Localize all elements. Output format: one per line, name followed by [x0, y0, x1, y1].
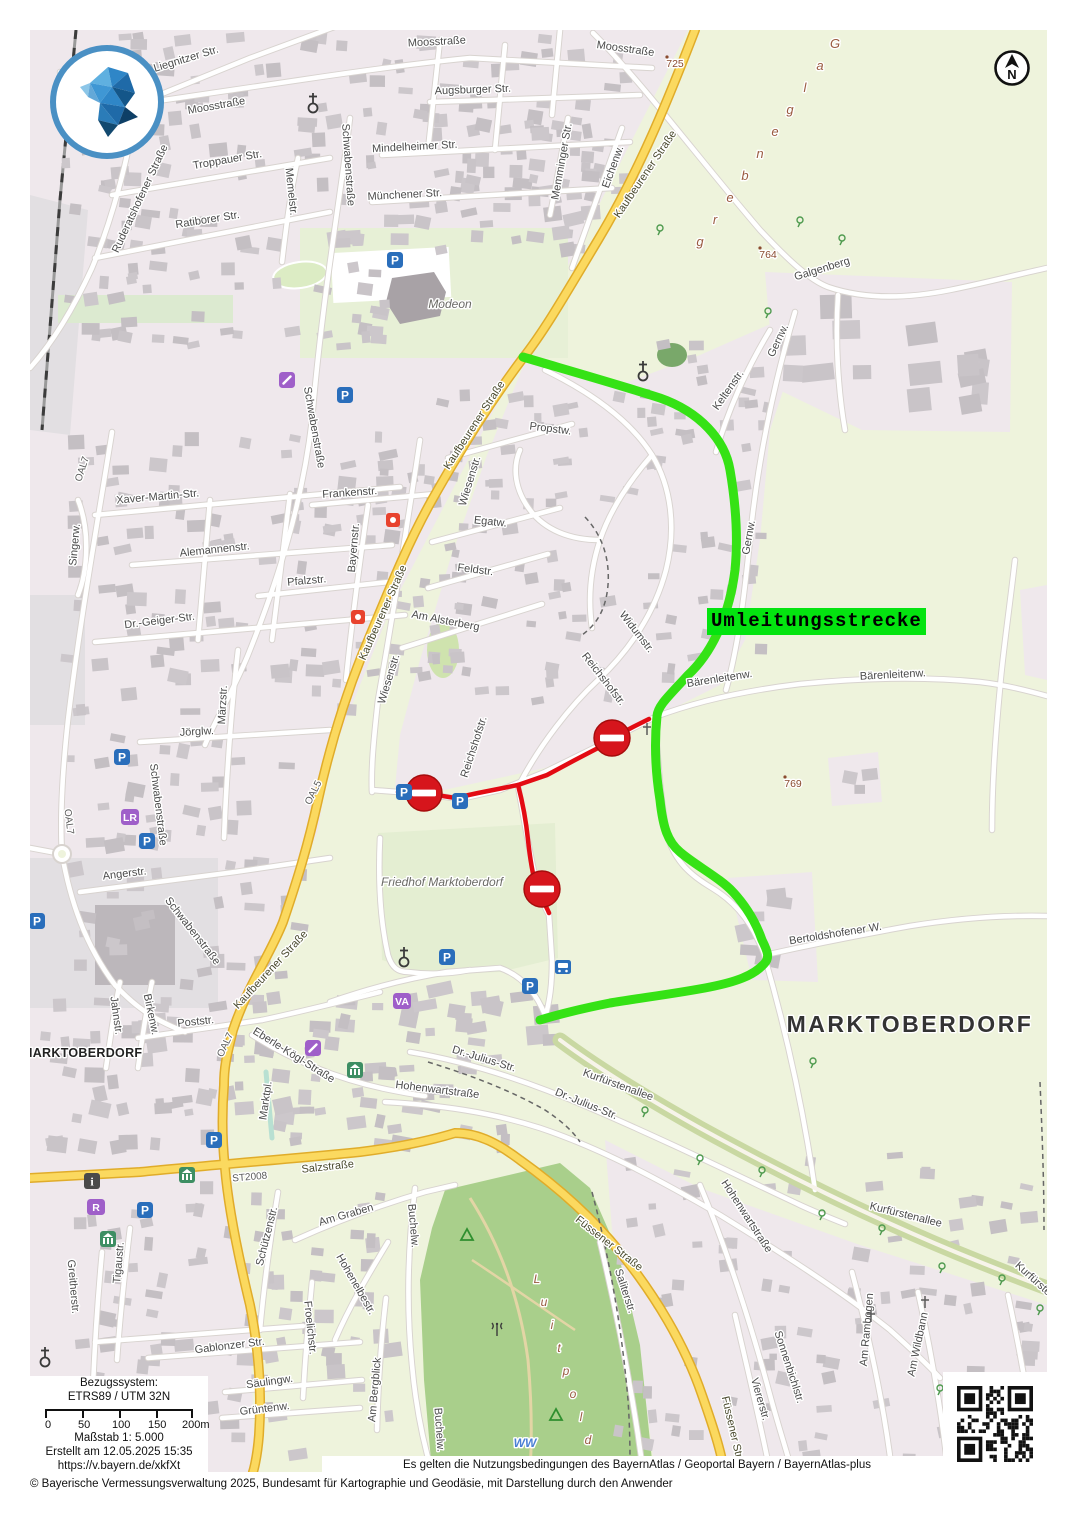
- svg-text:N: N: [1007, 67, 1016, 82]
- svg-text:P: P: [400, 786, 408, 800]
- elevation-label: 769: [784, 778, 802, 790]
- bus-icon: [555, 960, 571, 974]
- street-label: Märzstr.: [216, 685, 230, 725]
- info-icon: i: [84, 1173, 100, 1189]
- svg-text:P: P: [341, 389, 349, 403]
- svg-text:P: P: [526, 980, 534, 994]
- svg-text:P: P: [118, 751, 126, 765]
- north-arrow: N: [992, 48, 1032, 88]
- parking-icon: P: [439, 949, 455, 965]
- town-label-large: MARKTOBERDORF: [787, 1011, 1034, 1037]
- copyright-text: © Bayerische Vermessungsverwaltung 2025,…: [30, 1478, 930, 1490]
- hydrant-icon: [351, 610, 365, 624]
- poi-letter-icon: VA: [393, 993, 411, 1009]
- area-label-letter: G: [830, 36, 840, 51]
- terms-text: Es gelten die Nutzungsbedingungen des Ba…: [322, 1456, 952, 1474]
- museum-icon: [347, 1062, 363, 1078]
- detour-route-label: Umleitungsstrecke: [707, 608, 926, 635]
- parking-icon: P: [396, 784, 412, 800]
- street-label: Jörglw.: [179, 725, 214, 739]
- museum-icon: [179, 1167, 195, 1183]
- parking-icon: P: [206, 1132, 222, 1148]
- scale-bar: [45, 1409, 193, 1419]
- svg-text:P: P: [210, 1134, 218, 1148]
- area-label-letter: b: [741, 168, 748, 183]
- svg-text:P: P: [391, 254, 399, 268]
- svg-text:VA: VA: [395, 996, 409, 1008]
- area-label-letter: e: [726, 190, 733, 205]
- created-text: Erstellt am 12.05.2025 15:35: [30, 1446, 208, 1459]
- area-label-letter: d: [585, 1433, 592, 1447]
- roundabout: [53, 845, 71, 863]
- svg-text:R: R: [92, 1202, 100, 1214]
- area-label-letter: r: [713, 212, 718, 227]
- hydrant-icon: [386, 513, 400, 527]
- area-label-letter: g: [786, 102, 794, 117]
- museum-icon: [100, 1231, 116, 1247]
- svg-text:P: P: [141, 1204, 149, 1218]
- town-label-small: MARKTOBERDORF: [30, 1046, 142, 1060]
- parking-icon: P: [139, 833, 155, 849]
- qr-box: [943, 1372, 1047, 1472]
- area-label-letter: g: [696, 234, 704, 249]
- area-label-letter: o: [570, 1387, 577, 1401]
- poi-letter-icon: LR: [121, 809, 139, 825]
- elevation-label: 725: [666, 58, 684, 70]
- area-label-letter: n: [756, 146, 763, 161]
- reference-system-title: Bezugssystem:: [30, 1377, 208, 1390]
- scale-bar-labels: 0 50 100 150 200m: [34, 1419, 204, 1431]
- scale-box: Bezugssystem: ETRS89 / UTM 32N 0 50 100 …: [30, 1376, 208, 1472]
- parking-icon: P: [137, 1202, 153, 1218]
- parking-icon: P: [452, 793, 468, 809]
- poi-label: Modeon: [428, 297, 472, 311]
- area-label-letter: a: [816, 58, 823, 73]
- poi-label: WW: [514, 1436, 538, 1450]
- svg-text:P: P: [33, 915, 41, 929]
- area-label-letter: e: [771, 124, 778, 139]
- scale-text: Maßstab 1: 5.000: [30, 1432, 208, 1445]
- parking-icon: P: [522, 978, 538, 994]
- parking-icon: P: [387, 252, 403, 268]
- map-svg: Liegnitzer Str.MoosstraßeMoosstraßeMooss…: [30, 30, 1047, 1472]
- reference-system-value: ETRS89 / UTM 32N: [30, 1391, 208, 1404]
- area-label-letter: i: [551, 1318, 554, 1332]
- svg-text:P: P: [143, 835, 151, 849]
- svg-text:P: P: [443, 951, 451, 965]
- no-entry-icon: [524, 871, 560, 907]
- area-label-letter: l: [580, 1410, 583, 1424]
- pencil-icon: [279, 372, 295, 388]
- print-page: Liegnitzer Str.MoosstraßeMoosstraßeMooss…: [0, 0, 1080, 1527]
- pencil-icon: [305, 1040, 321, 1056]
- map-canvas[interactable]: Liegnitzer Str.MoosstraßeMoosstraßeMooss…: [30, 30, 1047, 1472]
- poi-letter-icon: R: [87, 1199, 105, 1215]
- share-url[interactable]: https://v.bayern.de/xkfXt: [30, 1460, 208, 1473]
- no-entry-icon: [594, 720, 630, 756]
- parking-icon: P: [30, 913, 45, 929]
- elevation-label: 764: [759, 249, 777, 261]
- area-label-letter: u: [541, 1295, 548, 1309]
- poi-label: Friedhof Marktoberdorf: [381, 875, 505, 889]
- parking-icon: P: [114, 749, 130, 765]
- svg-text:LR: LR: [123, 812, 137, 824]
- area-label-letter: p: [562, 1364, 570, 1378]
- area-label-letter: L: [534, 1272, 541, 1286]
- bayernatlas-logo: [48, 43, 166, 161]
- svg-text:P: P: [456, 795, 464, 809]
- parking-icon: P: [337, 387, 353, 403]
- qr-code: [957, 1386, 1033, 1462]
